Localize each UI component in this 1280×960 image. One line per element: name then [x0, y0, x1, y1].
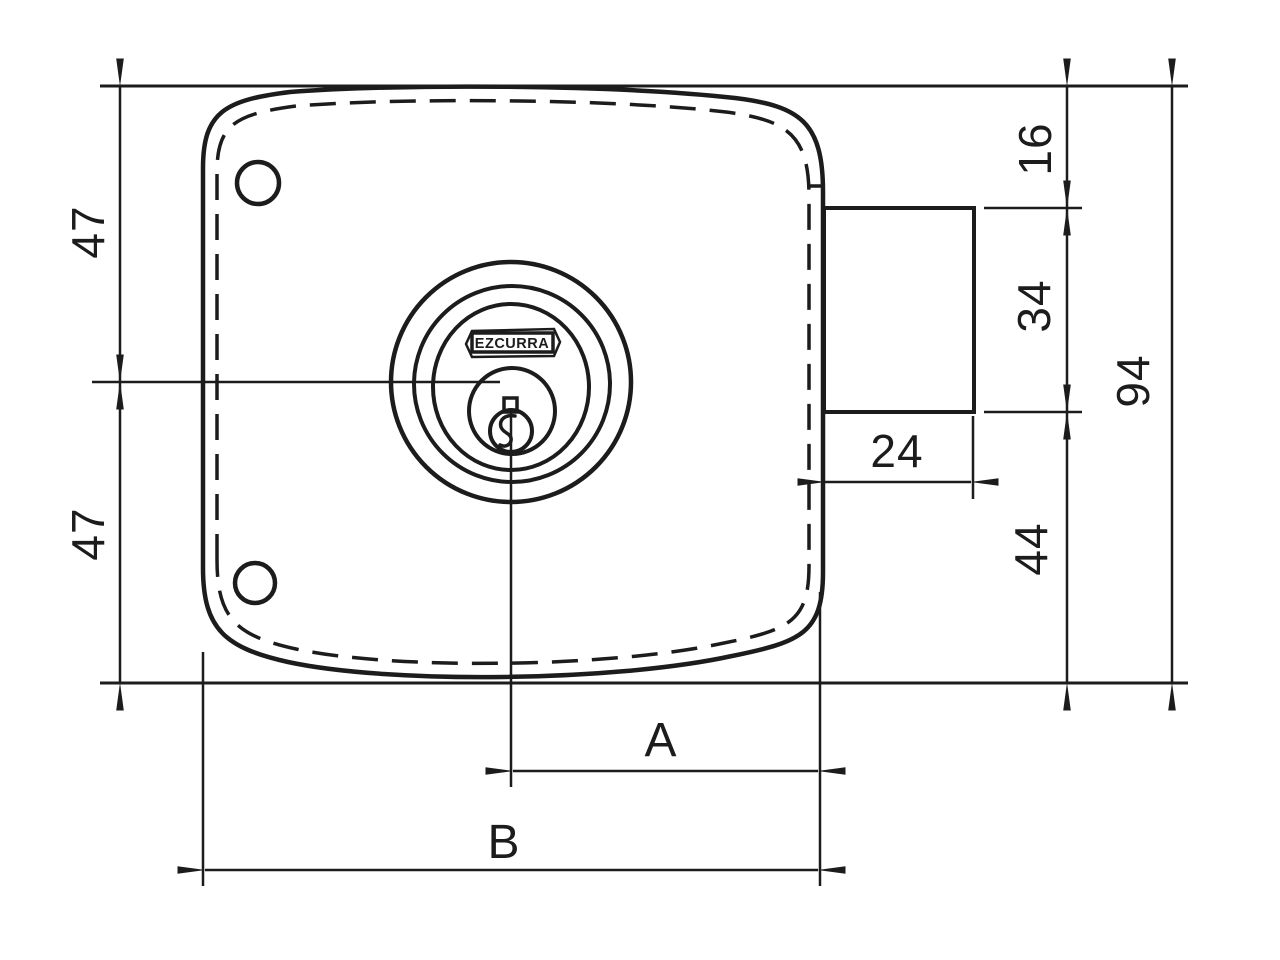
- dimension-labels: 47 47 16 34 44 94 24 A B: [62, 122, 1159, 869]
- screw-hole-top: [237, 162, 279, 204]
- extension-lines: [203, 208, 1082, 886]
- key-bit-icon: [500, 416, 515, 446]
- drawing-sheet: EZCURRA: [0, 0, 1280, 960]
- screw-hole-bottom: [235, 563, 275, 603]
- dim-label-total-94: 94: [1107, 354, 1159, 407]
- dim-label-left-lower-47: 47: [62, 507, 114, 560]
- brand-badge: EZCURRA: [466, 329, 560, 357]
- dim-label-b: B: [487, 816, 520, 869]
- brand-label: EZCURRA: [475, 336, 549, 352]
- bolt-outline: [824, 208, 974, 412]
- dim-label-left-upper-47: 47: [62, 205, 114, 258]
- lock-technical-drawing: EZCURRA: [0, 0, 1280, 960]
- centerlines: [92, 382, 511, 787]
- dim-label-bolt-24: 24: [870, 425, 923, 477]
- dim-label-right-44: 44: [1005, 522, 1057, 575]
- dim-label-a: A: [644, 714, 677, 767]
- bolt: [824, 208, 974, 412]
- dim-label-right-34: 34: [1008, 279, 1060, 332]
- dim-label-right-16: 16: [1009, 122, 1061, 175]
